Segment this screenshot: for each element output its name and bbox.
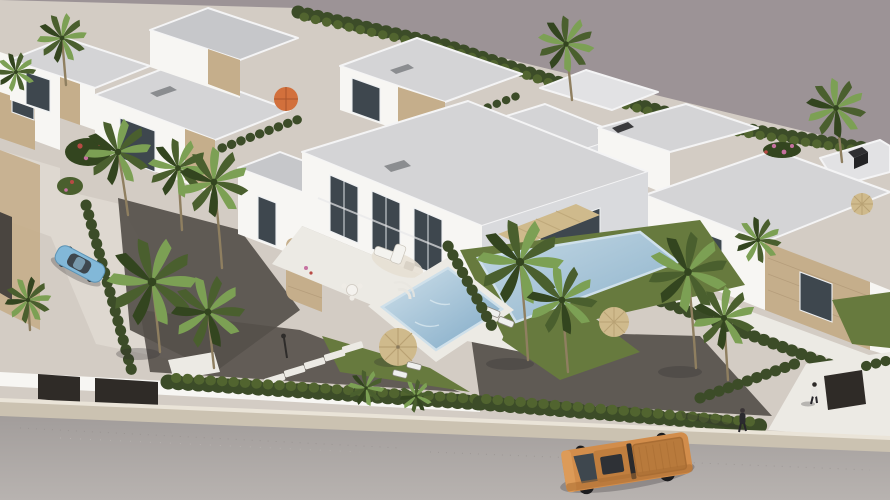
gate-left-1 bbox=[38, 374, 80, 403]
render-image: Aerial 3D architectural rendering of a m… bbox=[0, 0, 890, 500]
orange-parasol bbox=[274, 87, 298, 111]
driveway-gate bbox=[824, 370, 866, 410]
aerial-villa-render bbox=[0, 0, 890, 500]
straw-parasol-right bbox=[851, 193, 873, 215]
straw-parasol-2 bbox=[599, 307, 629, 337]
